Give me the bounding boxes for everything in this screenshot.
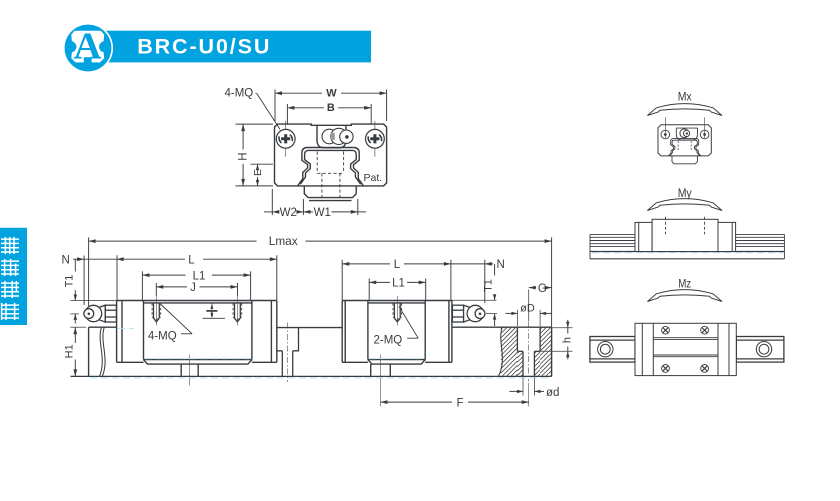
svg-text:L1: L1 [392,278,405,290]
svg-text:J: J [190,282,196,294]
svg-text:W2: W2 [280,207,297,219]
svg-text:H: H [238,152,250,160]
svg-text:N: N [497,259,505,271]
svg-text:My: My [678,186,692,200]
svg-text:Pat.: Pat. [364,172,383,184]
svg-text:øD: øD [520,302,535,314]
svg-text:2-MQ: 2-MQ [374,335,403,347]
svg-text:L1: L1 [193,270,206,282]
svg-text:Lmax: Lmax [269,234,298,248]
svg-text:T1: T1 [63,275,75,288]
svg-text:Mx: Mx [678,90,692,104]
svg-text:Mz: Mz [678,276,691,290]
svg-text:E: E [252,169,264,176]
svg-text:L: L [188,254,195,266]
svg-text:A: A [74,26,102,68]
svg-text:L: L [394,259,401,271]
svg-text:N: N [62,254,70,266]
svg-text:F: F [456,397,463,409]
svg-text:ød: ød [546,387,559,399]
svg-text:4-MQ: 4-MQ [225,88,254,100]
svg-text:H1: H1 [63,344,75,358]
svg-text:W: W [326,88,337,100]
svg-text:BRC-U0/SU: BRC-U0/SU [137,35,271,59]
svg-text:W1: W1 [314,207,331,219]
svg-text:h: h [561,337,573,343]
svg-text:4-MQ: 4-MQ [148,330,177,342]
svg-text:G: G [538,283,547,295]
svg-text:T1: T1 [483,279,495,292]
svg-text:B: B [327,102,335,114]
